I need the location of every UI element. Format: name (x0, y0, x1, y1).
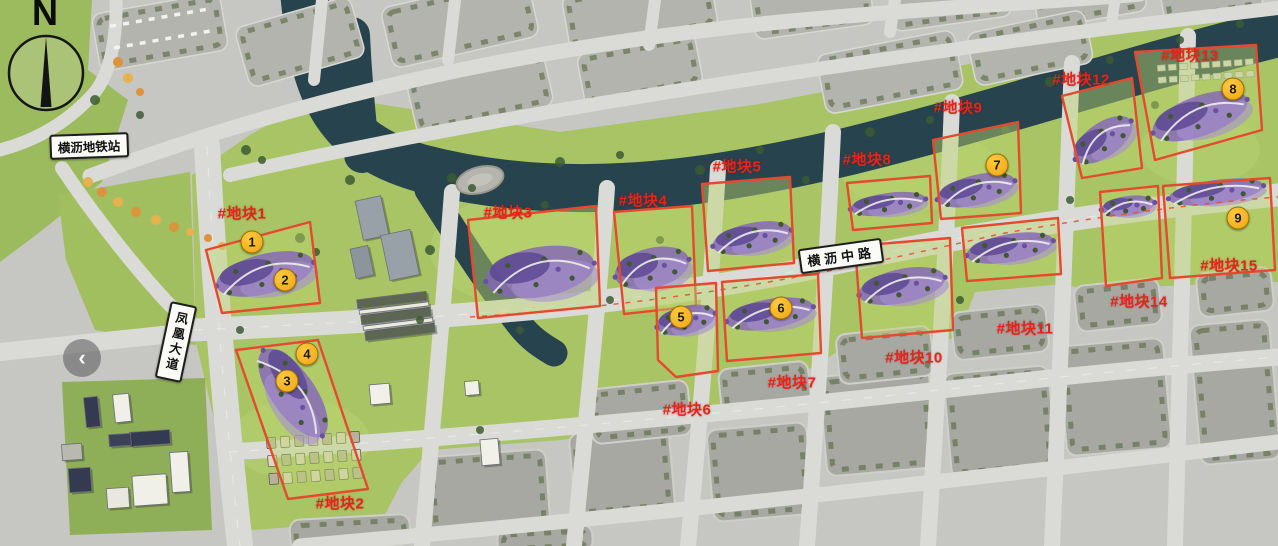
plot-label: #地块8 (843, 149, 892, 170)
plot-label: #地块9 (934, 97, 983, 118)
north-letter: N (32, 0, 58, 34)
plot-marker: 4 (296, 343, 319, 366)
plot-marker: 5 (670, 306, 693, 329)
metro-station-label: 横沥地铁站 (49, 132, 128, 160)
chevron-left-icon: ‹ (78, 345, 85, 370)
site-plan-map: N 横沥地铁站 凤凰大道 横沥中路 #地块1#地块2#地块3#地块4#地块5#地… (0, 0, 1278, 546)
plot-label: #地块2 (316, 493, 365, 514)
plot-marker: 1 (241, 231, 264, 254)
plot-label: #地块12 (1052, 69, 1110, 90)
plot-label: #地块10 (885, 347, 943, 368)
back-button[interactable]: ‹ (63, 339, 101, 377)
plot-marker: 9 (1227, 207, 1250, 230)
plot-marker: 2 (274, 269, 297, 292)
plot-marker: 6 (770, 297, 793, 320)
plot-marker: 7 (986, 154, 1009, 177)
plot-label: #地块14 (1110, 291, 1168, 312)
plot-label: #地块15 (1200, 255, 1258, 276)
plot-label: #地块7 (768, 372, 817, 393)
plot-label: #地块13 (1161, 45, 1219, 66)
plot-label: #地块11 (997, 318, 1054, 339)
plot-label: #地块6 (663, 399, 712, 420)
plot-label: #地块4 (619, 190, 668, 211)
plot-label: #地块1 (218, 203, 267, 224)
plot-label: #地块3 (484, 202, 533, 223)
plot-label: #地块5 (713, 156, 762, 177)
plot-marker: 8 (1222, 78, 1245, 101)
plot-marker: 3 (276, 370, 299, 393)
